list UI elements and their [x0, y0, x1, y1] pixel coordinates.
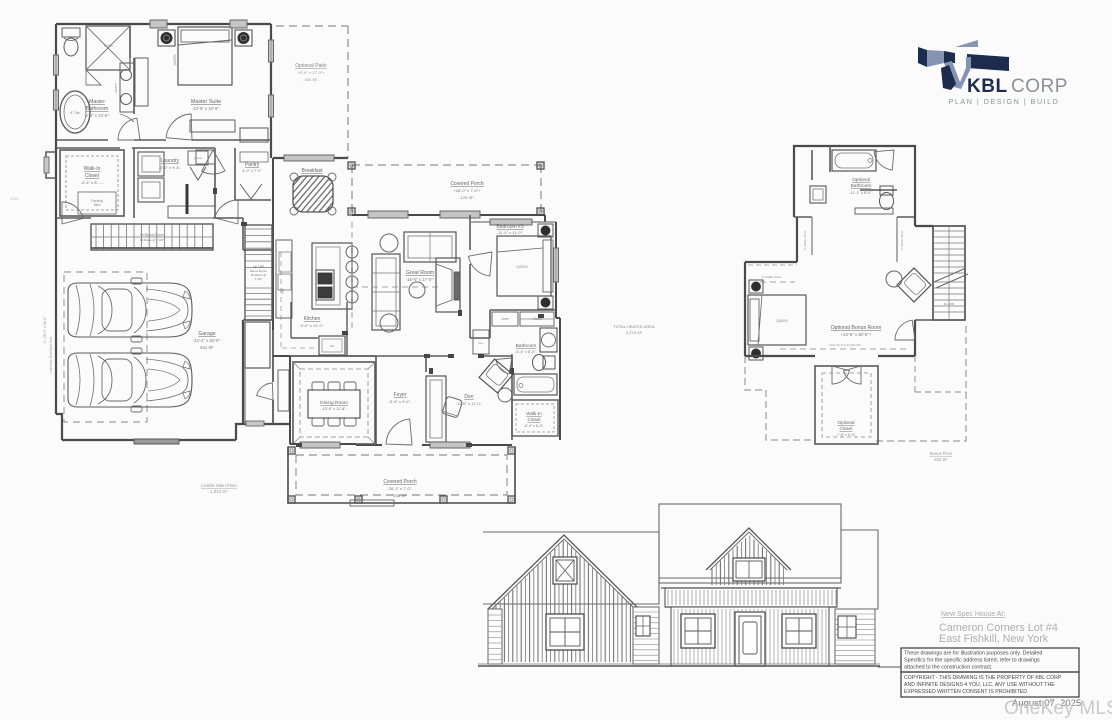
svg-text:Underside Overhead Door: Underside Overhead Door [49, 335, 53, 373]
svg-text:-28'-3" x 7'-0"-: -28'-3" x 7'-0"- [387, 486, 413, 491]
svg-text:KBL: KBL [967, 76, 1008, 97]
svg-text:LINE OF 8' FLR CEILING: LINE OF 8' FLR CEILING [829, 343, 861, 347]
svg-text:+9'-6" x 17'-0"+: +9'-6" x 17'-0"+ [297, 70, 325, 75]
svg-text:-11'-6" x 11'-0"-: -11'-6" x 11'-0"- [456, 401, 483, 406]
svg-text:Optional Bonus Room: Optional Bonus Room [831, 325, 882, 331]
svg-text:-7'-6" x 9'-0"-: -7'-6" x 9'-0"- [836, 433, 857, 437]
svg-text:PLAN | DESIGN | BUILD: PLAN | DESIGN | BUILD [949, 97, 1060, 106]
svg-text:+/- 28'-0" x 38'-0": +/- 28'-0" x 38'-0" [43, 316, 47, 344]
svg-text:QUEEN: QUEEN [173, 54, 177, 66]
svg-text:+26'-0" x 7'-0"+: +26'-0" x 7'-0"+ [453, 188, 481, 193]
svg-text:Livable Main Floor: Livable Main Floor [201, 483, 237, 488]
svg-text:Dining Room: Dining Room [320, 400, 348, 406]
svg-text:7 3/4": 7 3/4" [255, 277, 263, 281]
svg-text:Covered Porch: Covered Porch [383, 479, 417, 485]
svg-text:Ref: Ref [281, 288, 285, 293]
svg-text:-9'-4" x 13'-0"-: -9'-4" x 13'-0"- [84, 113, 111, 118]
svg-text:Ref: Ref [330, 344, 335, 348]
svg-text:East Fishkill, New York: East Fishkill, New York [939, 633, 1049, 645]
svg-text:5' KNEE WALL: 5' KNEE WALL [762, 275, 782, 279]
svg-text:-300 SF-: -300 SF- [303, 77, 319, 82]
svg-text:-11'-0" x 11'-0"-: -11'-0" x 11'-0"- [497, 230, 524, 235]
svg-text:Walk-In: Walk-In [84, 166, 101, 172]
svg-text:Closet: Closet [194, 156, 203, 160]
svg-text:Table: Table [93, 203, 101, 207]
svg-text:These drawings are for illustr: These drawings are for illustration purp… [904, 651, 1042, 657]
svg-text:Bathroom: Bathroom [851, 183, 872, 189]
svg-text:Pantry: Pantry [245, 162, 260, 168]
svg-text:-6'-4" x 8'-0"-: -6'-4" x 8'-0"- [515, 350, 537, 354]
svg-text:Breakfast: Breakfast [301, 168, 323, 174]
svg-text:Dn Bonus Room: Dn Bonus Room [140, 233, 164, 237]
svg-text:Master Suite: Master Suite [191, 99, 221, 105]
svg-text:AND INFINITE DESIGNS 4 YOU, LL: AND INFINITE DESIGNS 4 YOU, LLC. ANY USE… [904, 682, 1055, 688]
svg-text:Closet: Closet [839, 426, 853, 431]
svg-text:Closet: Closet [85, 173, 100, 179]
svg-text:Dn 15R: Dn 15R [944, 302, 955, 306]
svg-text:Optional: Optional [837, 420, 854, 425]
svg-text:Master: Master [89, 99, 105, 105]
svg-text:-5'-4" x 6'-0"-: -5'-4" x 6'-0"- [524, 424, 545, 428]
svg-text:Covered Porch: Covered Porch [450, 181, 484, 187]
svg-text:4'-0" x 7'-0": 4'-0" x 7'-0" [242, 169, 262, 173]
svg-text:Bathroom: Bathroom [516, 343, 537, 349]
svg-text:-13'-6" x 11'-8"-: -13'-6" x 11'-8"- [321, 407, 347, 411]
svg-text:208 SF: 208 SF [394, 493, 407, 498]
svg-text:QUEEN: QUEEN [516, 265, 528, 269]
svg-text:1910: 1910 [10, 196, 20, 201]
svg-text:Laundry: Laundry [161, 158, 180, 164]
svg-text:TILED: TILED [103, 44, 113, 48]
svg-text:Great Room: Great Room [406, 270, 434, 276]
svg-text:Specifics for the specific add: Specifics for the specific address liste… [904, 658, 1040, 664]
svg-text:-176 SF-: -176 SF- [459, 195, 475, 200]
svg-text:15 Rises @ 7 3/4": 15 Rises @ 7 3/4" [140, 238, 164, 242]
svg-text:Kitchen: Kitchen [304, 316, 321, 322]
svg-text:Den: Den [464, 394, 473, 400]
svg-text:attached to the construction c: attached to the construction contract. [904, 665, 992, 671]
svg-text:-24'-4" x 25'-0"-: -24'-4" x 25'-0"- [193, 338, 222, 343]
svg-text:-5'-6" x 9'-6"-: -5'-6" x 9'-6"- [389, 399, 412, 404]
svg-text:-6'-0" x 9'-4"-: -6'-0" x 9'-4"- [159, 165, 182, 170]
svg-text:Foyer: Foyer [394, 392, 407, 398]
svg-text:Linen: Linen [501, 317, 509, 321]
svg-text:+23'-6" x 30'-6"+: +23'-6" x 30'-6"+ [841, 332, 872, 337]
svg-text:- 1,844 SF -: - 1,844 SF - [207, 489, 231, 494]
svg-text:COPYRIGHT - THIS DRAWING IS TH: COPYRIGHT - THIS DRAWING IS THE PROPERTY… [904, 675, 1062, 681]
svg-text:New Spec House At:: New Spec House At: [941, 611, 1005, 618]
svg-text:QUEEN: QUEEN [776, 319, 788, 323]
svg-text:Closet: Closet [527, 417, 541, 422]
svg-text:CORP: CORP [1011, 76, 1068, 97]
svg-text:EXPRESSED WRITTEN CONSENT IS P: EXPRESSED WRITTEN CONSENT IS PROHIBITED [904, 689, 1027, 695]
svg-text:-9'-0" x 14'-0"-: -9'-0" x 14'-0"- [299, 323, 325, 328]
svg-text:Bathroom: Bathroom [86, 106, 109, 112]
svg-text:2,278 SF: 2,278 SF [626, 330, 643, 335]
svg-text:533 SF: 533 SF [934, 457, 948, 462]
svg-text:641 SF: 641 SF [200, 345, 214, 350]
svg-text:TOTAL HEATED AREA: TOTAL HEATED AREA [613, 324, 655, 329]
svg-text:5' KNEE WALL: 5' KNEE WALL [900, 230, 904, 250]
svg-text:-13'-9" x 15'-6"-: -13'-9" x 15'-6"- [192, 106, 221, 111]
svg-text:-6'-4" x 8'-...-: -6'-4" x 8'-...- [81, 180, 104, 185]
svg-text:Aux: Aux [478, 341, 484, 345]
svg-text:VANITY: VANITY [114, 83, 118, 94]
svg-text:6' Tub: 6' Tub [70, 111, 79, 115]
svg-text:5' KNEE WALL: 5' KNEE WALL [803, 230, 807, 250]
svg-text:OneKey MLS: OneKey MLS [1004, 698, 1112, 719]
svg-text:-15'-0" x 17'-0"-: -15'-0" x 17'-0"- [406, 277, 435, 282]
svg-text:Bonus Floor: Bonus Floor [930, 451, 953, 456]
svg-text:Optional Patio: Optional Patio [295, 63, 327, 69]
svg-text:Garage: Garage [198, 331, 215, 337]
svg-text:Optional: Optional [852, 177, 870, 183]
svg-text:-11'-1" x 8'-0"-: -11'-1" x 8'-0"- [849, 191, 873, 195]
svg-text:Walk-In: Walk-In [526, 411, 542, 416]
